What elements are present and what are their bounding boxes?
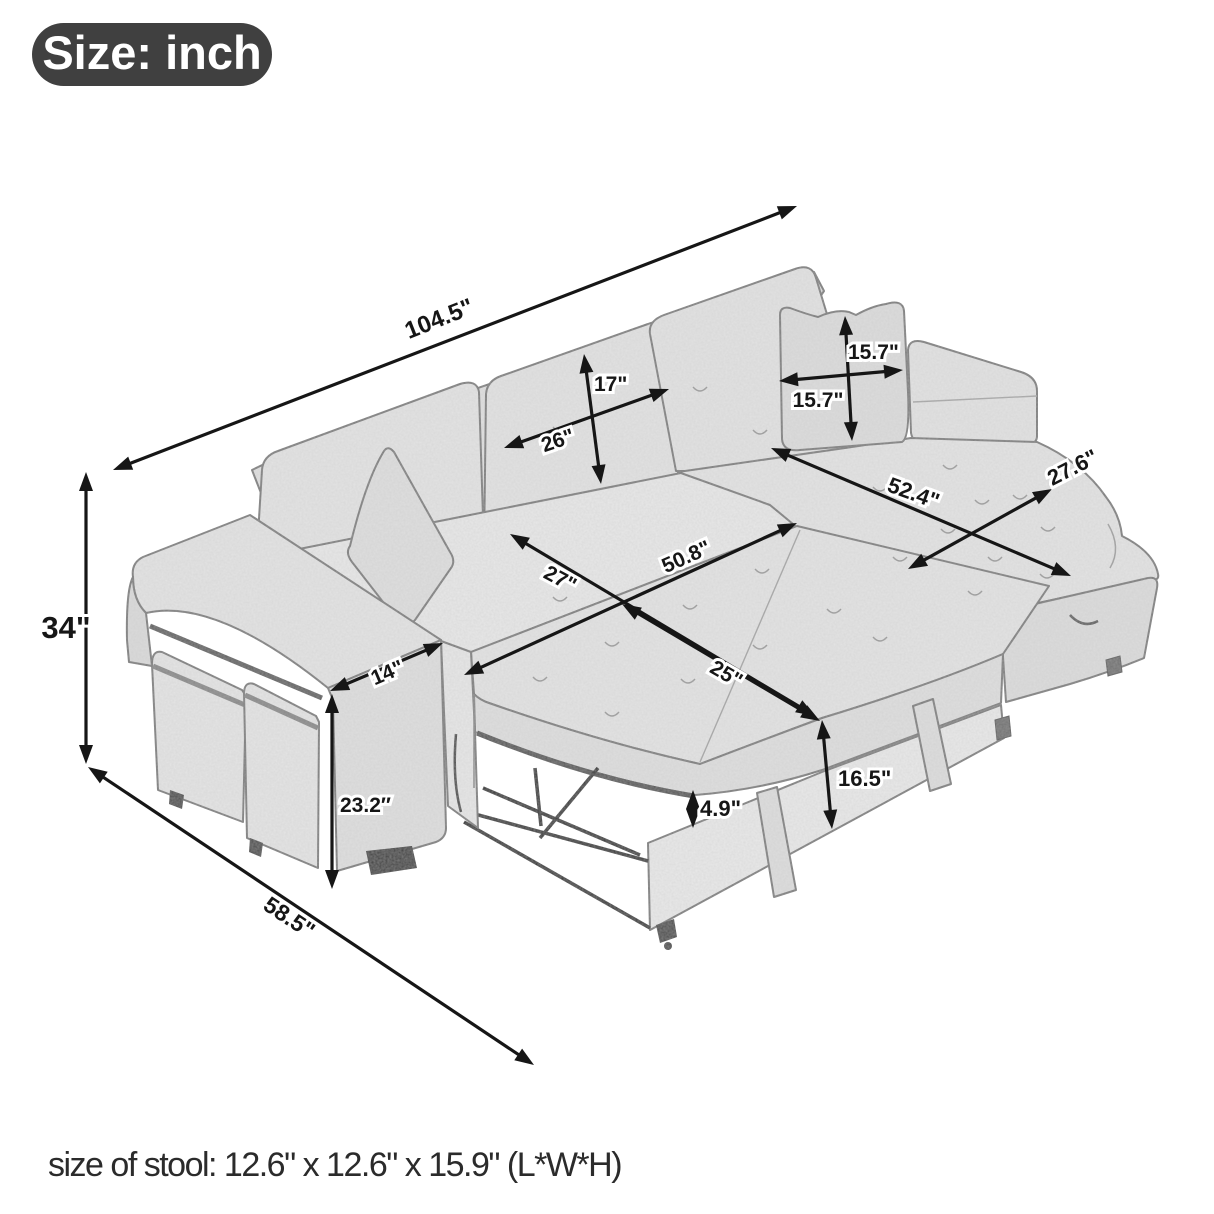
svg-text:15.7": 15.7" bbox=[848, 341, 899, 364]
svg-text:23.2″: 23.2″ bbox=[340, 794, 391, 817]
svg-text:15.7": 15.7" bbox=[793, 389, 844, 412]
svg-text:104.5": 104.5" bbox=[401, 293, 477, 344]
svg-text:16.5": 16.5" bbox=[838, 766, 891, 791]
svg-text:34": 34" bbox=[41, 610, 90, 645]
svg-text:17": 17" bbox=[594, 373, 627, 396]
svg-text:58.5": 58.5" bbox=[259, 891, 320, 943]
svg-text:4.9": 4.9" bbox=[700, 796, 741, 821]
